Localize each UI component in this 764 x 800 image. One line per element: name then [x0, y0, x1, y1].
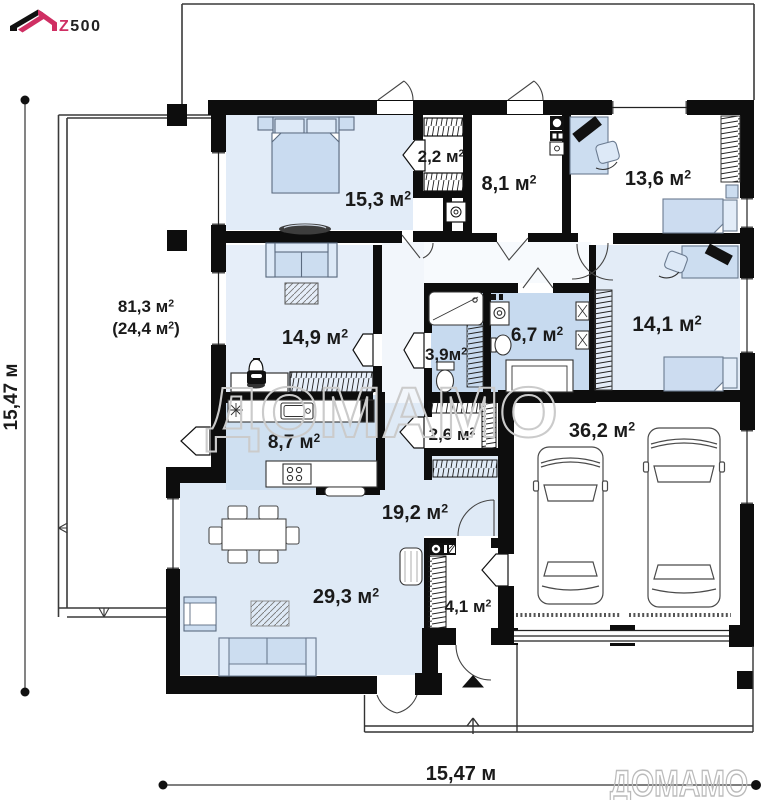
svg-text:14,9 м2: 14,9 м2 [282, 327, 348, 349]
svg-text:6,7 м2: 6,7 м2 [511, 324, 564, 346]
svg-text:Z500: Z500 [59, 18, 101, 35]
svg-text:3,9м2: 3,9м2 [425, 345, 467, 364]
svg-text:15,47 м: 15,47 м [426, 763, 496, 785]
svg-text:19,2 м2: 19,2 м2 [382, 502, 448, 524]
svg-text:ДОМАМО: ДОМАМО [206, 374, 558, 453]
svg-text:8,1 м2: 8,1 м2 [481, 173, 536, 195]
svg-text:36,2 м2: 36,2 м2 [569, 420, 635, 442]
svg-text:13,6 м2: 13,6 м2 [625, 168, 691, 190]
svg-text:2,2 м2: 2,2 м2 [418, 147, 465, 166]
svg-text:15,3 м2: 15,3 м2 [345, 189, 411, 211]
svg-text:ДОМАМО: ДОМАМО [610, 763, 748, 800]
svg-text:81,3 м2: 81,3 м2 [118, 297, 174, 316]
svg-text:29,3 м2: 29,3 м2 [313, 586, 379, 608]
svg-text:4,1 м2: 4,1 м2 [445, 597, 492, 616]
svg-text:15,47 м: 15,47 м [1, 364, 22, 431]
svg-text:14,1 м2: 14,1 м2 [632, 312, 701, 336]
